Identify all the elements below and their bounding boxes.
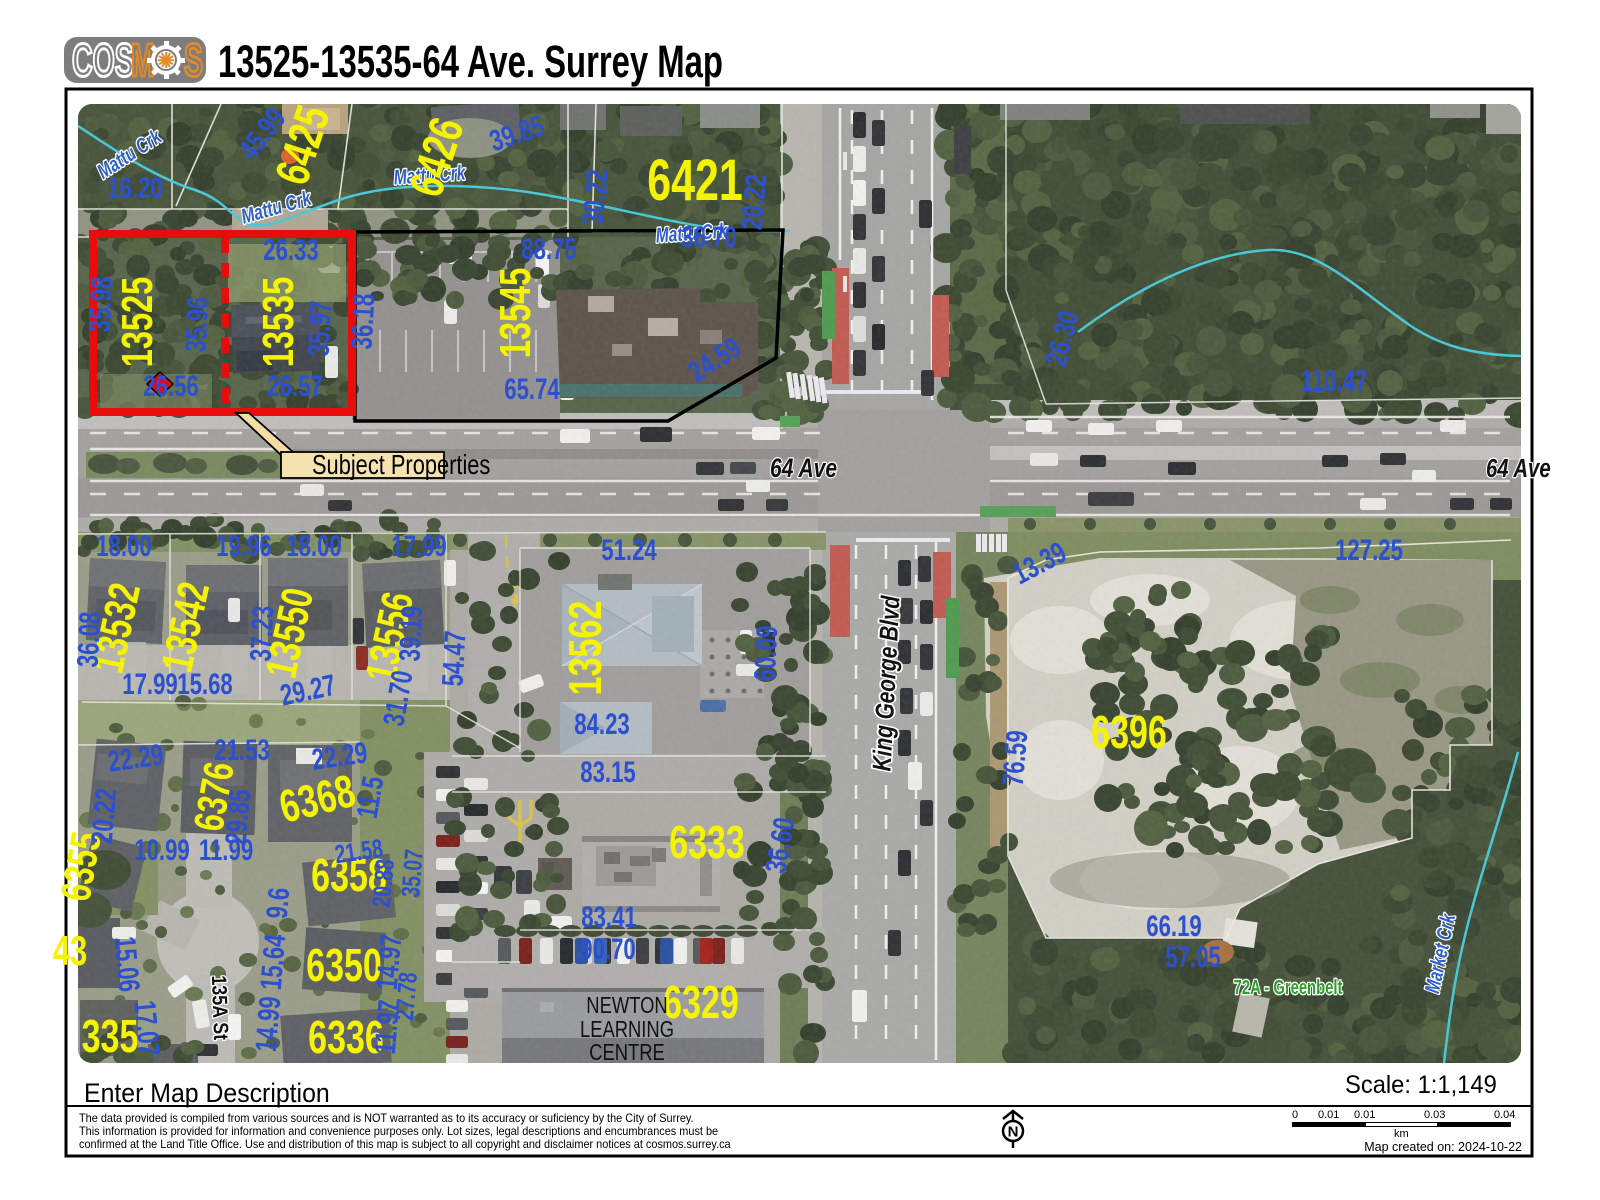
- svg-text:9.6: 9.6: [259, 886, 296, 920]
- svg-text:64 Ave: 64 Ave: [770, 454, 837, 484]
- svg-text:64 Ave: 64 Ave: [1486, 454, 1551, 483]
- svg-text:127.25: 127.25: [1335, 533, 1403, 567]
- svg-text:57.05: 57.05: [1165, 940, 1221, 974]
- svg-text:13545: 13545: [491, 268, 540, 359]
- svg-text:NEWTON: NEWTON: [586, 993, 667, 1018]
- svg-text:36.18: 36.18: [344, 293, 381, 350]
- svg-text:30.22: 30.22: [575, 168, 614, 226]
- svg-text:83.15: 83.15: [580, 755, 636, 789]
- svg-text:13562: 13562: [559, 601, 611, 696]
- svg-text:6396: 6396: [1091, 706, 1167, 758]
- svg-text:43: 43: [53, 927, 88, 974]
- svg-text:90.70: 90.70: [580, 932, 636, 966]
- svg-text:20.22: 20.22: [84, 787, 123, 845]
- svg-text:19.96: 19.96: [216, 529, 272, 563]
- svg-text:54.47: 54.47: [435, 630, 472, 687]
- svg-text:13535: 13535: [254, 277, 303, 368]
- svg-text:Map created on: 2024-10-22: Map created on: 2024-10-22: [1364, 1140, 1522, 1154]
- svg-text:76.59: 76.59: [995, 729, 1034, 787]
- svg-text:26.57: 26.57: [267, 369, 323, 403]
- svg-text:COS: COS: [72, 35, 134, 87]
- svg-text:confirmed at the Land Title Of: confirmed at the Land Title Office. Use …: [79, 1139, 731, 1151]
- svg-text:14.99: 14.99: [248, 995, 287, 1053]
- svg-text:11.5: 11.5: [349, 774, 390, 821]
- svg-text:km: km: [1394, 1128, 1409, 1140]
- svg-text:Subject Properties: Subject Properties: [312, 449, 490, 480]
- svg-text:0.03: 0.03: [1424, 1109, 1445, 1121]
- svg-text:Enter Map Description: Enter Map Description: [84, 1079, 330, 1108]
- svg-text:CENTRE: CENTRE: [589, 1040, 665, 1065]
- svg-text:35.07: 35.07: [395, 848, 429, 899]
- svg-text:36.70: 36.70: [681, 220, 737, 254]
- svg-text:18.00: 18.00: [96, 529, 152, 563]
- svg-text:60.09: 60.09: [747, 625, 784, 682]
- svg-text:135A St: 135A St: [206, 975, 232, 1041]
- svg-text:17.99: 17.99: [391, 529, 447, 563]
- svg-text:35.97: 35.97: [301, 300, 338, 357]
- svg-text:83.41: 83.41: [581, 900, 637, 934]
- svg-text:S: S: [184, 35, 203, 87]
- svg-text:65.74: 65.74: [504, 372, 560, 406]
- svg-text:26.56: 26.56: [143, 369, 199, 403]
- svg-text:84.23: 84.23: [574, 707, 630, 741]
- svg-text:6421: 6421: [647, 148, 742, 213]
- svg-text:21.53: 21.53: [214, 733, 270, 767]
- svg-text:20.22: 20.22: [734, 173, 773, 231]
- svg-text:35.98: 35.98: [82, 276, 119, 333]
- svg-text:This information is provided f: This information is provided for informa…: [79, 1126, 718, 1138]
- svg-text:26.33: 26.33: [263, 233, 319, 267]
- svg-text:6333: 6333: [669, 816, 745, 868]
- svg-text:0.01: 0.01: [1318, 1109, 1339, 1121]
- svg-text:17.07: 17.07: [128, 999, 167, 1057]
- svg-text:Scale: 1:1,149: Scale: 1:1,149: [1345, 1071, 1497, 1099]
- svg-text:10.99: 10.99: [134, 833, 190, 867]
- svg-text:N: N: [1008, 1124, 1019, 1141]
- svg-text:72A - Greenbelt: 72A - Greenbelt: [1234, 976, 1343, 999]
- svg-text:LEARNING: LEARNING: [580, 1017, 674, 1042]
- svg-text:0: 0: [1292, 1109, 1298, 1121]
- svg-text:13525: 13525: [113, 277, 162, 368]
- svg-text:36.08: 36.08: [70, 611, 107, 668]
- svg-text:16.20: 16.20: [107, 171, 163, 205]
- svg-text:15.06: 15.06: [108, 935, 147, 993]
- svg-text:110.47: 110.47: [1301, 364, 1368, 398]
- svg-text:39.19: 39.19: [392, 605, 429, 662]
- svg-text:6329: 6329: [663, 976, 739, 1028]
- svg-text:The data provided is compiled: The data provided is compiled from vario…: [79, 1113, 694, 1125]
- svg-text:66.19: 66.19: [1146, 909, 1202, 943]
- svg-text:0.01: 0.01: [1354, 1109, 1375, 1121]
- svg-text:27.78: 27.78: [389, 971, 423, 1022]
- svg-text:88.75: 88.75: [521, 232, 577, 266]
- svg-text:35.96: 35.96: [178, 296, 215, 353]
- svg-text:11.99: 11.99: [199, 833, 253, 867]
- svg-text:13525-13535-64 Ave. Surrey Map: 13525-13535-64 Ave. Surrey Map: [218, 37, 723, 87]
- svg-text:15.64: 15.64: [253, 933, 292, 992]
- svg-text:17.99: 17.99: [122, 667, 178, 701]
- svg-text:20.88: 20.88: [366, 858, 400, 909]
- svg-text:0.04: 0.04: [1494, 1109, 1515, 1121]
- svg-text:18.00: 18.00: [286, 529, 342, 563]
- svg-text:15.68: 15.68: [177, 667, 233, 701]
- svg-text:37.23: 37.23: [243, 605, 280, 662]
- svg-text:51.24: 51.24: [601, 533, 657, 567]
